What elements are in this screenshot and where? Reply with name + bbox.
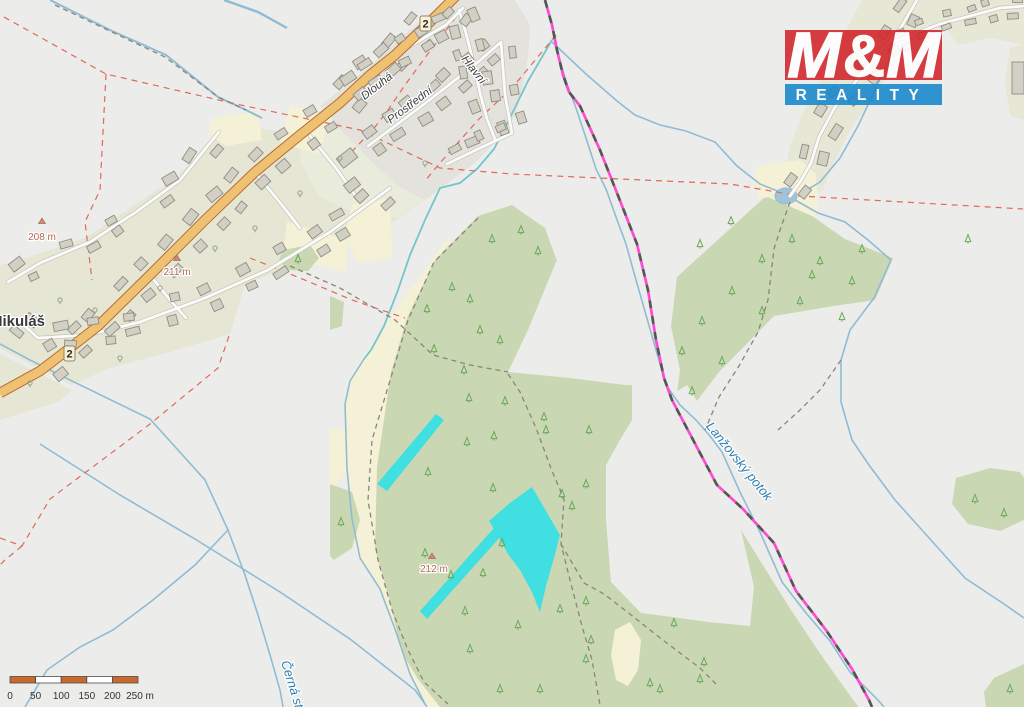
svg-text:250 m: 250 m <box>126 691 154 702</box>
svg-text:0: 0 <box>7 691 13 702</box>
svg-text:REALITY: REALITY <box>796 87 929 104</box>
svg-text:Mikuláš: Mikuláš <box>0 313 45 330</box>
svg-text:208 m: 208 m <box>28 232 56 243</box>
svg-text:2: 2 <box>422 19 428 31</box>
svg-text:200: 200 <box>104 691 121 702</box>
svg-text:150: 150 <box>78 691 95 702</box>
svg-text:M: M <box>886 19 941 91</box>
svg-text:2: 2 <box>66 349 72 361</box>
svg-text:50: 50 <box>30 691 42 702</box>
svg-text:&: & <box>843 24 885 89</box>
svg-text:M: M <box>787 19 842 91</box>
svg-text:212 m: 212 m <box>420 564 448 575</box>
svg-text:100: 100 <box>53 691 70 702</box>
svg-text:211 m: 211 m <box>163 267 190 278</box>
